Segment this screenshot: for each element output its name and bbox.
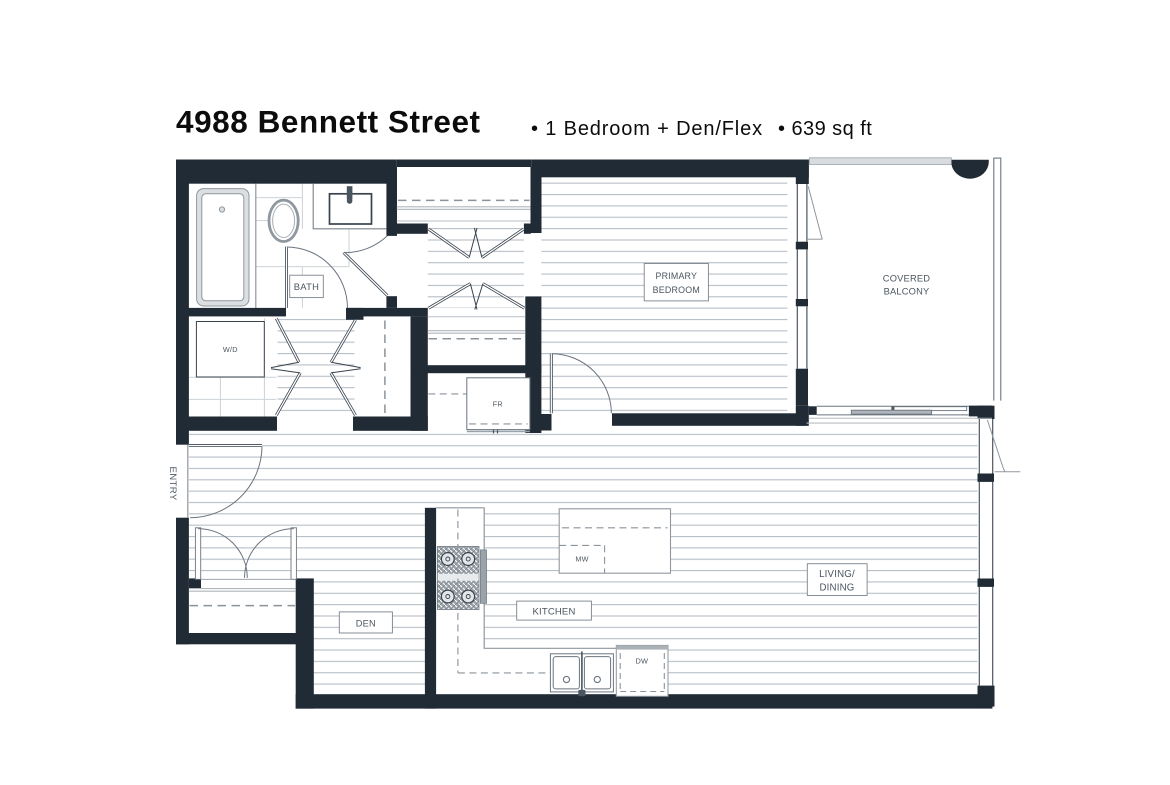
svg-text:BATH: BATH: [294, 281, 320, 292]
svg-text:DW: DW: [635, 657, 648, 666]
svg-text:KITCHEN: KITCHEN: [532, 606, 575, 617]
svg-text:FR: FR: [493, 400, 503, 409]
svg-text:4988 Bennett Street: 4988 Bennett Street: [176, 104, 481, 140]
svg-text:BALCONY: BALCONY: [884, 287, 930, 297]
svg-text:MW: MW: [575, 555, 588, 564]
svg-text:• 1 Bedroom + Den/Flex: • 1 Bedroom + Den/Flex: [531, 118, 763, 140]
svg-text:DEN: DEN: [356, 618, 376, 628]
svg-text:BEDROOM: BEDROOM: [653, 285, 700, 295]
svg-text:• 639 sq ft: • 639 sq ft: [778, 118, 872, 140]
svg-text:W/D: W/D: [223, 345, 238, 354]
svg-text:PRIMARY: PRIMARY: [655, 271, 697, 281]
svg-text:DINING: DINING: [819, 583, 854, 594]
svg-text:ENTRY: ENTRY: [167, 467, 178, 501]
svg-text:LIVING/: LIVING/: [819, 569, 855, 580]
svg-text:COVERED: COVERED: [883, 274, 930, 284]
